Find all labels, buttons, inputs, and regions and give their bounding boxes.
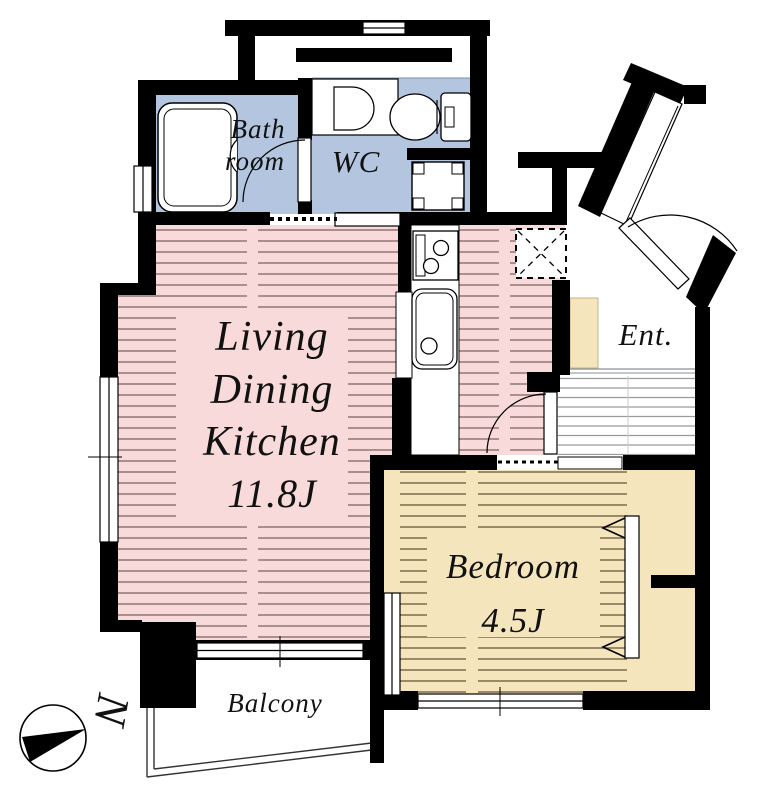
washing-machine-space <box>412 162 464 210</box>
top-vent-window <box>363 22 405 34</box>
balcony <box>147 708 380 777</box>
bedroom-size-label: 4.5J <box>481 601 545 640</box>
ldk-west-window <box>88 377 122 542</box>
floor-plan: Bath room WC Ent. Living Dining Kitchen … <box>0 0 760 802</box>
kitchen-stove <box>413 231 458 280</box>
kitchen-sink <box>412 289 457 369</box>
bathroom-label-line1: Bath <box>231 114 286 144</box>
refrigerator-space <box>516 229 566 278</box>
ldk-label-line2: Dining <box>210 367 334 413</box>
compass-north-letter: N <box>84 689 140 731</box>
balcony-label: Balcony <box>227 688 322 718</box>
ldk-label-line1: Living <box>214 314 328 360</box>
bathroom-label-line2: room <box>225 146 285 176</box>
wet-area-sliding-door <box>335 213 400 226</box>
compass: N <box>20 689 140 771</box>
washbasin <box>312 79 398 135</box>
hallway-floor-stripes <box>558 375 695 455</box>
wc-label: WC <box>332 144 381 179</box>
bedroom-west-window <box>384 593 400 695</box>
bedroom-label: Bedroom <box>446 547 580 586</box>
ldk-size-label: 11.8J <box>227 471 318 516</box>
shoe-cabinet <box>570 298 598 368</box>
ldk-label-line3: Kitchen <box>202 419 341 465</box>
toilet <box>390 93 471 141</box>
bedroom-doorway-slider <box>558 457 622 469</box>
entrance-label: Ent. <box>618 317 674 352</box>
floor-plan-page: Bath room WC Ent. Living Dining Kitchen … <box>0 0 760 802</box>
bathroom-window <box>134 166 152 212</box>
